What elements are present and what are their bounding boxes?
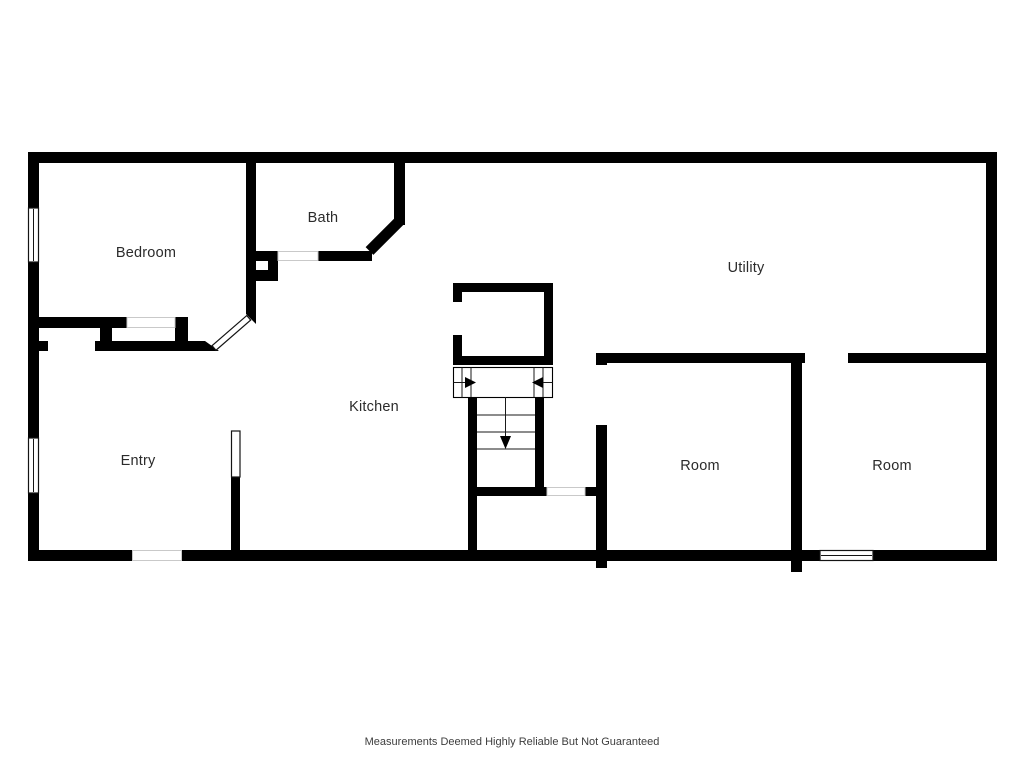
room-label-bedroom: Bedroom [116, 245, 176, 261]
room-label-entry: Entry [121, 453, 156, 469]
room-label-room-right: Room [872, 458, 911, 474]
stair-box-bottom [453, 356, 553, 365]
bath-door-opening [278, 252, 318, 261]
wall-top [28, 152, 997, 163]
entry-door-leaf [232, 431, 241, 477]
wall-left-lower [28, 493, 39, 561]
stair-box-left-lower [453, 335, 462, 365]
stair-box-top [453, 283, 553, 292]
room-label-utility: Utility [728, 260, 765, 276]
wall-bottom-left [28, 550, 132, 561]
disclaimer-text: Measurements Deemed Highly Reliable But … [365, 736, 660, 748]
stair-run-wall-left [468, 397, 477, 550]
wall-bedroom-south [38, 317, 127, 328]
wall-hall-left-stub [28, 341, 48, 351]
wall-bath-south-right [318, 251, 372, 261]
stair-box-right [544, 283, 553, 365]
room-label-room-left: Room [680, 458, 719, 474]
wall-room-divider [791, 353, 802, 572]
wall-bottom-right [873, 550, 997, 561]
wall-kitchen-room-lower [596, 425, 607, 568]
stair-run-wall-right [535, 397, 544, 496]
wall-rooms-top-right [848, 353, 997, 363]
room-label-kitchen: Kitchen [349, 399, 399, 415]
floor-plan-drawing [0, 0, 1024, 768]
stair-box-left-upper [453, 283, 462, 302]
wall-entry-stub [231, 477, 240, 550]
wall-bath-right [394, 152, 405, 225]
wall-hall-lower [95, 341, 205, 351]
wall-bath-jamb-a [268, 261, 278, 270]
front-door-opening [133, 551, 182, 561]
window-room-right-icon [820, 551, 873, 561]
window-entry-icon [29, 438, 39, 493]
staircase [453, 283, 553, 550]
wall-hall-south-right [585, 487, 607, 496]
room-label-bath: Bath [308, 210, 339, 226]
wall-bath-diagonal [370, 221, 400, 251]
hall-opening [547, 488, 585, 496]
wall-left-upper [28, 152, 39, 208]
stair-arrow-down-icon [500, 436, 511, 449]
wall-rooms-top-left [596, 353, 805, 363]
closet-opening [127, 318, 175, 328]
bedroom-door-leaf [212, 316, 251, 351]
wall-bath-jamb-b [251, 270, 278, 281]
window-bedroom-icon [29, 208, 39, 262]
wall-closet-stub-left [100, 328, 112, 343]
wall-bottom-middle [182, 550, 820, 561]
wall-bath-south-left [256, 251, 278, 261]
wall-bedroom-bath-divider [246, 152, 256, 312]
floor-plan-page: Bedroom Bath Utility Kitchen Entry Room … [0, 0, 1024, 768]
